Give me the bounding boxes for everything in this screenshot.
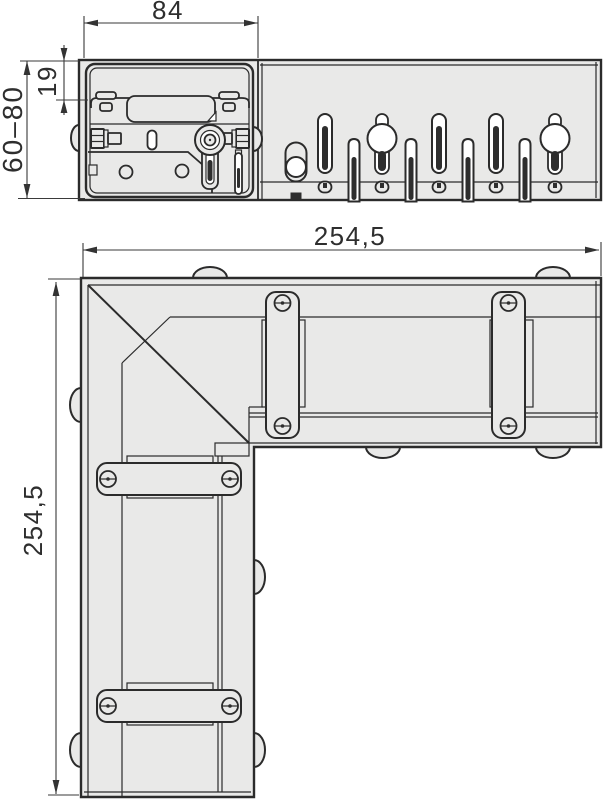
plate-screw <box>222 698 238 714</box>
leveling-foot-left <box>71 125 79 151</box>
connector-plate <box>97 463 241 495</box>
guide-pin <box>235 150 242 194</box>
plate-screw <box>501 295 517 311</box>
dimension-84: 84 <box>84 0 258 58</box>
connector-plate <box>266 292 299 438</box>
plan-view: 254,5 254,5 <box>18 221 601 797</box>
plate-screw <box>275 418 291 434</box>
drawing-page: 84 19 60–80 <box>0 0 604 800</box>
plate-tab <box>89 165 97 175</box>
plate-screw <box>222 471 238 487</box>
dimension-254-5-horizontal: 254,5 <box>83 221 601 277</box>
rail-slot <box>148 131 157 150</box>
dim-label-84: 84 <box>152 0 184 25</box>
connector-plate <box>492 292 525 438</box>
plate-hole <box>120 166 133 179</box>
dimension-254-5-vertical: 254,5 <box>18 279 81 795</box>
connector-plate <box>97 690 241 722</box>
swivel-flange <box>195 125 225 155</box>
handle-recess <box>127 96 215 122</box>
plate-screw <box>501 418 517 434</box>
plate-screw <box>100 471 116 487</box>
dim-label-19: 19 <box>32 65 62 97</box>
plate-screw <box>275 295 291 311</box>
dim-label-60-80: 60–80 <box>0 85 28 173</box>
plate-hole <box>176 165 189 178</box>
technical-drawing: 84 19 60–80 <box>0 0 604 800</box>
dim-label-254-5-v: 254,5 <box>18 484 48 557</box>
side-view: 84 19 60–80 <box>0 0 601 202</box>
pin-hole <box>286 157 306 177</box>
dim-label-254-5-h: 254,5 <box>314 221 387 251</box>
bottom-notch <box>291 193 302 200</box>
plate-screw <box>100 698 116 714</box>
corner-connector-bracket <box>86 64 253 197</box>
